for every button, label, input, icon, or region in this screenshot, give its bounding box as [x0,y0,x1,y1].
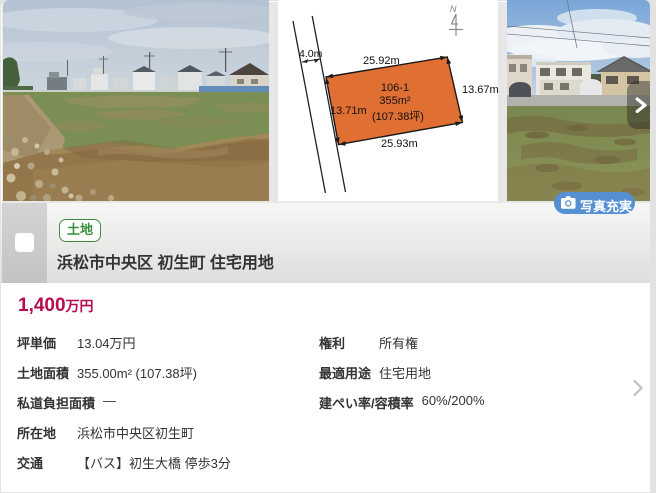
svg-text:106-1: 106-1 [381,82,409,94]
svg-text:4.0m: 4.0m [299,48,323,60]
svg-text:13.67m: 13.67m [462,84,498,96]
svg-text:355m²: 355m² [379,95,411,107]
svg-text:25.93m: 25.93m [381,138,418,150]
svg-text:N: N [450,4,457,14]
svg-text:13.71m: 13.71m [330,105,367,117]
svg-text:25.92m: 25.92m [363,55,400,67]
svg-text:(107.38坪): (107.38坪) [372,110,424,123]
